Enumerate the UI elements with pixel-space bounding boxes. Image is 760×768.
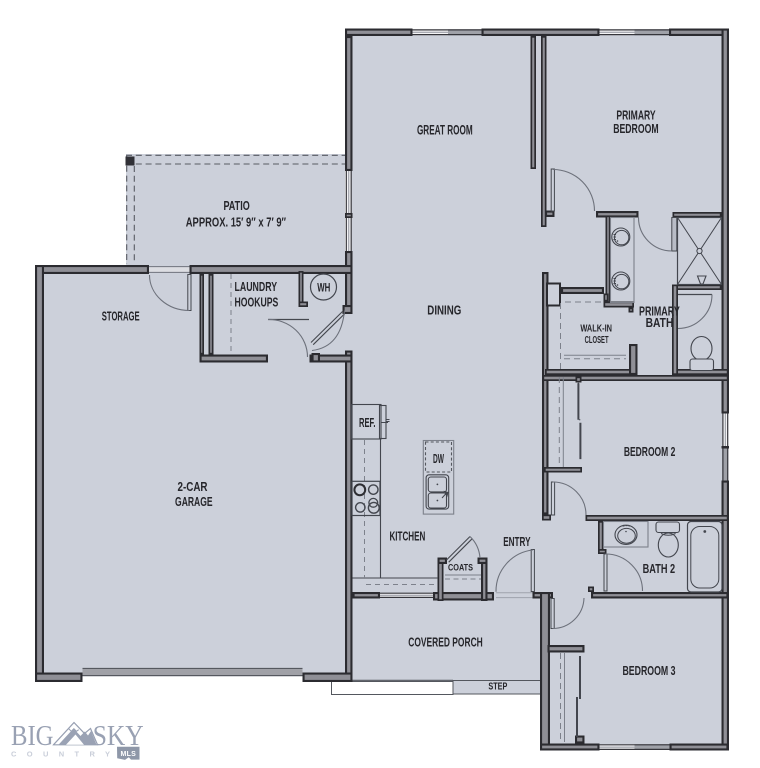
- svg-text:BEDROOM: BEDROOM: [613, 121, 658, 136]
- svg-text:STORAGE: STORAGE: [102, 309, 140, 323]
- svg-text:DW: DW: [433, 451, 444, 466]
- svg-text:REF.: REF.: [359, 415, 376, 430]
- svg-text:WALK-IN: WALK-IN: [580, 322, 612, 334]
- svg-text:GARAGE: GARAGE: [175, 494, 213, 509]
- svg-text:LAUNDRY: LAUNDRY: [235, 280, 278, 294]
- svg-text:APPROX. 15′ 9″ x 7′ 9″: APPROX. 15′ 9″ x 7′ 9″: [186, 214, 286, 229]
- svg-text:2-CAR: 2-CAR: [178, 479, 208, 494]
- svg-text:BEDROOM 2: BEDROOM 2: [624, 444, 676, 459]
- svg-text:MLS: MLS: [120, 751, 136, 758]
- svg-text:COATS: COATS: [448, 562, 473, 572]
- svg-text:HOOKUPS: HOOKUPS: [235, 296, 279, 310]
- svg-text:BEDROOM 3: BEDROOM 3: [622, 663, 675, 678]
- svg-text:ENTRY: ENTRY: [503, 534, 530, 549]
- svg-text:BATH 2: BATH 2: [643, 561, 676, 576]
- svg-text:PATIO: PATIO: [223, 198, 249, 213]
- svg-text:BIG: BIG: [11, 721, 54, 752]
- svg-text:DINING: DINING: [427, 302, 461, 317]
- svg-text:GREAT ROOM: GREAT ROOM: [417, 123, 473, 138]
- svg-text:STEP: STEP: [488, 682, 507, 693]
- svg-text:BATH: BATH: [646, 315, 674, 330]
- svg-text:WH: WH: [317, 280, 330, 294]
- svg-text:CLOSET: CLOSET: [585, 334, 609, 346]
- svg-text:COVERED PORCH: COVERED PORCH: [408, 635, 483, 650]
- svg-text:KITCHEN: KITCHEN: [389, 529, 425, 544]
